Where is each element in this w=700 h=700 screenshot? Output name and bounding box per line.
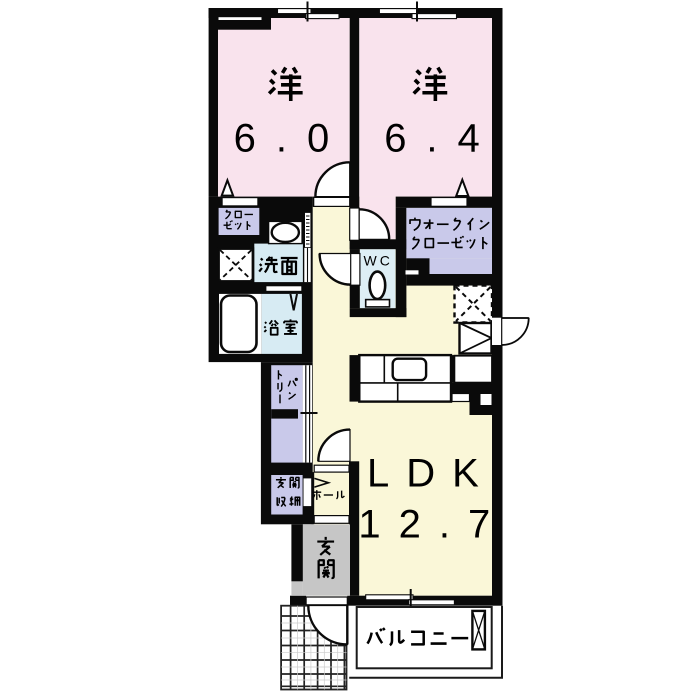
svg-text:6.4: 6.4	[384, 117, 500, 161]
svg-text:LDK: LDK	[367, 452, 496, 496]
svg-text:WC: WC	[364, 253, 393, 269]
svg-text:12.7: 12.7	[358, 502, 508, 546]
svg-text:6.0: 6.0	[234, 117, 350, 161]
